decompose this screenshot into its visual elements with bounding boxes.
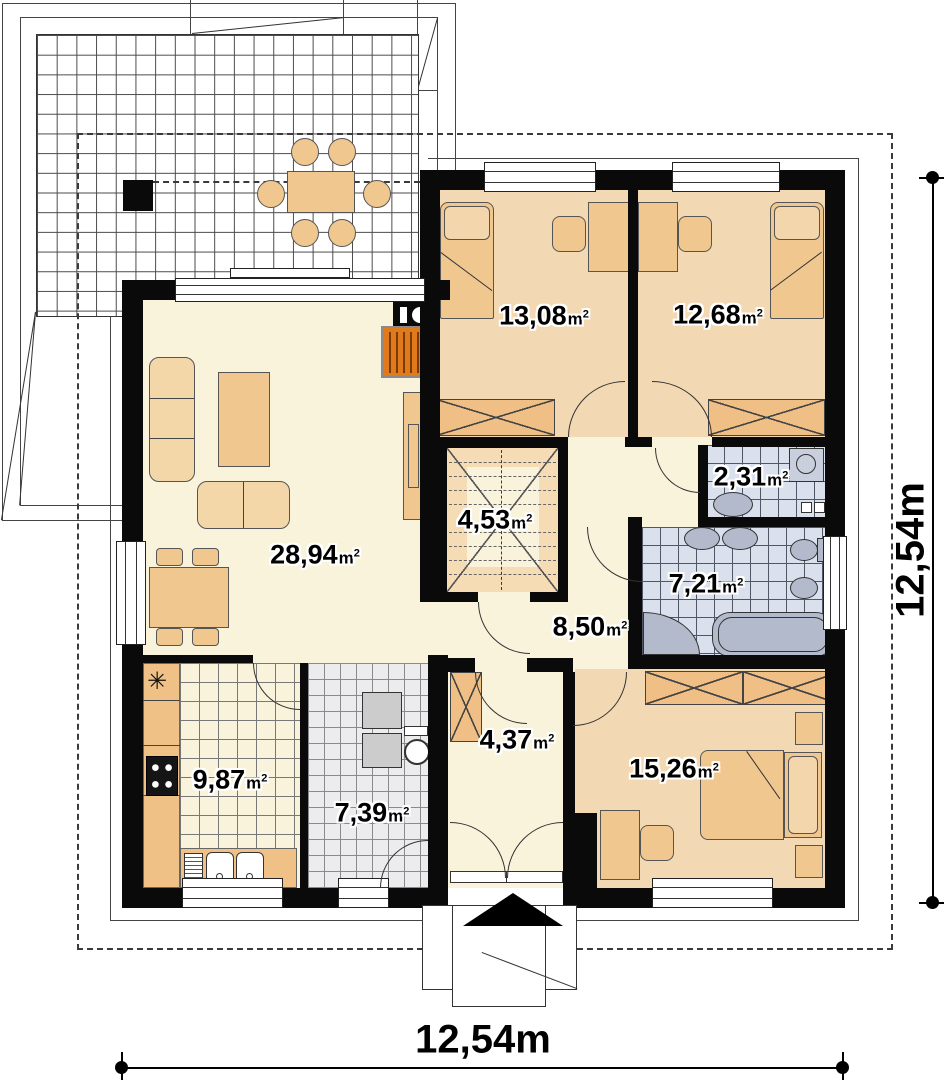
dining-chair-icon xyxy=(156,548,183,566)
wall xyxy=(712,437,825,447)
wall xyxy=(530,592,568,602)
wall xyxy=(558,448,568,600)
fireplace-grate xyxy=(389,332,420,373)
fridge-marker-icon: ✳ xyxy=(147,667,167,696)
window xyxy=(182,878,283,908)
boiler-icon xyxy=(404,739,430,765)
wall xyxy=(625,437,652,447)
desk-chair-icon xyxy=(640,825,674,861)
dimension-tick xyxy=(919,902,944,904)
wall xyxy=(527,658,573,672)
dryer-icon xyxy=(362,733,402,768)
dimension-tick xyxy=(919,177,944,179)
room-label-utility-room: 7,39m2 xyxy=(335,798,410,829)
wall xyxy=(420,170,440,445)
desk-icon xyxy=(588,202,630,272)
window xyxy=(484,162,596,192)
desk-chair-icon xyxy=(552,216,586,252)
wall xyxy=(628,170,638,442)
room-label-bedroom-2: 12,68m2 xyxy=(673,300,763,331)
terrace-outline xyxy=(2,3,3,520)
entrance-arrow-icon xyxy=(463,893,563,926)
dimension-line-bottom xyxy=(122,1067,843,1069)
roof-ridge-line xyxy=(190,0,191,34)
dining-chair-icon xyxy=(156,628,183,646)
wall xyxy=(698,517,825,527)
sofa-cushion-line xyxy=(150,398,194,399)
wardrobe-icon xyxy=(437,399,555,436)
sofa-icon xyxy=(149,357,195,482)
room-label-entry-hall: 4,37m2 xyxy=(480,725,555,756)
terrace-outline xyxy=(2,3,455,4)
dining-table-icon xyxy=(149,567,229,628)
dimension-width-label: 12,54m xyxy=(415,1018,551,1063)
sink-icon xyxy=(722,527,758,550)
dimension-tick xyxy=(121,1052,123,1080)
window xyxy=(823,536,847,630)
wall xyxy=(563,813,597,908)
room-label-hallway: 8,50m2 xyxy=(553,612,628,643)
coffee-table-icon xyxy=(218,372,270,467)
desk-icon xyxy=(600,810,640,880)
roof-ridge-line xyxy=(417,90,437,91)
radiator-icon xyxy=(801,502,812,513)
wall xyxy=(300,663,308,888)
desk-icon xyxy=(638,202,678,272)
pillow-icon xyxy=(788,756,818,834)
room-label-bedroom-3: 15,26m2 xyxy=(629,754,719,785)
terrace-door-window xyxy=(175,278,425,302)
nightstand-icon xyxy=(795,712,823,745)
terrace-outline xyxy=(20,17,21,505)
roof-hip-line xyxy=(417,18,438,91)
dimension-tick xyxy=(842,1052,844,1080)
wall xyxy=(428,655,448,908)
window xyxy=(116,541,146,645)
room-label-bathroom: 7,21m2 xyxy=(669,569,744,600)
dining-chair-icon xyxy=(192,548,219,566)
sink-icon xyxy=(713,492,753,517)
wall xyxy=(420,592,478,602)
bathtub-inner xyxy=(718,617,828,652)
boiler-pipe xyxy=(404,726,428,736)
room-label-wc: 2,31m2 xyxy=(714,462,789,493)
wall xyxy=(420,448,447,592)
wall xyxy=(143,655,253,663)
roof-hip-line xyxy=(192,17,343,34)
roof-hip-line xyxy=(19,312,36,505)
room-label-living-room: 28,94m2 xyxy=(270,540,360,571)
dimension-height-label: 12,54m xyxy=(889,482,934,618)
floor-plan: ✳ xyxy=(0,0,944,1080)
wall xyxy=(122,280,180,300)
dining-chair-icon xyxy=(192,628,219,646)
washing-machine-door xyxy=(796,454,816,474)
pillow-icon xyxy=(444,206,490,240)
wardrobe-icon xyxy=(708,399,825,436)
window xyxy=(652,878,773,908)
desk-chair-icon xyxy=(678,216,712,252)
sofa-cushion-line xyxy=(243,482,244,528)
sink-icon xyxy=(684,527,720,550)
vent-icon xyxy=(400,307,407,323)
wardrobe-icon xyxy=(645,671,743,705)
wall xyxy=(420,437,568,448)
radiator-icon xyxy=(814,502,825,513)
window xyxy=(672,162,780,192)
counter-divider xyxy=(143,700,180,701)
stove-icon xyxy=(146,756,178,796)
roof-hip-line xyxy=(1,312,36,520)
counter-divider xyxy=(143,745,180,746)
room-label-bedroom-1: 13,08m2 xyxy=(499,301,589,332)
terrace-outline xyxy=(20,17,437,18)
tv-icon xyxy=(408,424,419,488)
room-label-kitchen: 9,87m2 xyxy=(193,765,268,796)
washing-machine-icon xyxy=(362,692,402,729)
pillow-icon xyxy=(774,206,820,240)
toilet-icon xyxy=(790,539,818,561)
room-label-staircase: 4,53m2 xyxy=(458,505,533,536)
sofa-cushion-line xyxy=(150,438,194,439)
wall xyxy=(628,655,825,669)
terrace-step xyxy=(230,268,350,278)
nightstand-icon xyxy=(795,845,823,878)
bidet-icon xyxy=(790,577,818,599)
